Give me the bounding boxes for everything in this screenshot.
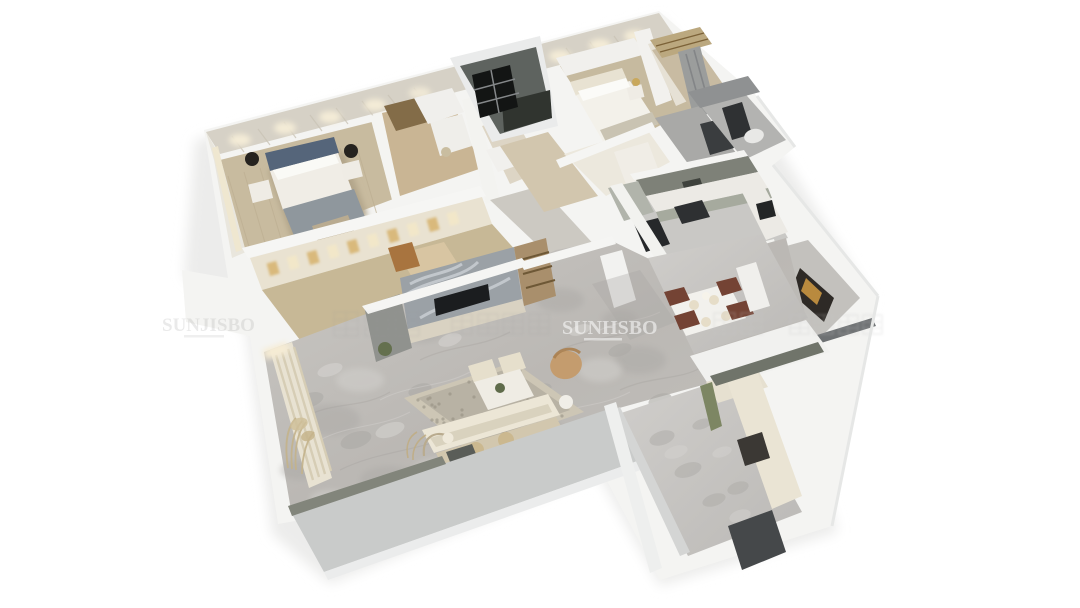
svg-text:SUNHSBO: SUNHSBO <box>562 317 658 339</box>
svg-text:SUNJISBO: SUNJISBO <box>162 315 255 336</box>
